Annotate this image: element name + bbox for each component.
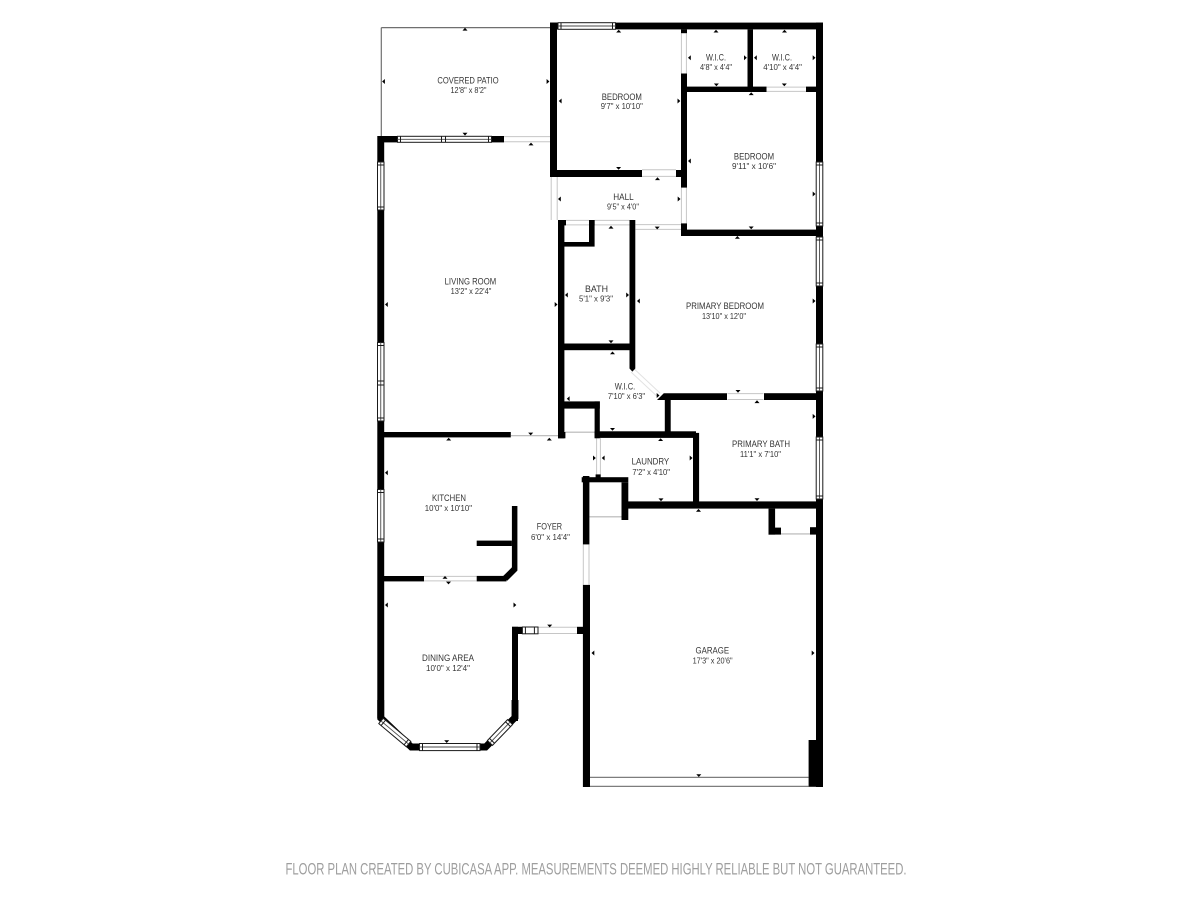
svg-text:FOYER: FOYER [537,522,563,532]
svg-text:7'10" x 6'3": 7'10" x 6'3" [608,391,645,401]
svg-text:9'7" x 10'10": 9'7" x 10'10" [601,101,643,111]
svg-text:11'1" x 7'10": 11'1" x 7'10" [740,449,781,459]
svg-text:BATH: BATH [585,284,608,294]
svg-text:5'1" x 9'3": 5'1" x 9'3" [579,294,613,304]
svg-text:9'5" x 4'0": 9'5" x 4'0" [607,201,639,211]
svg-text:13'2" x 22'4": 13'2" x 22'4" [451,286,492,296]
svg-text:FLOOR PLAN CREATED BY CUBICASA: FLOOR PLAN CREATED BY CUBICASA APP. MEAS… [286,861,907,879]
svg-text:BEDROOM: BEDROOM [734,152,774,162]
svg-text:PRIMARY BEDROOM: PRIMARY BEDROOM [686,301,764,311]
svg-text:6'0" x 14'4": 6'0" x 14'4" [531,532,570,542]
svg-text:PRIMARY BATH: PRIMARY BATH [732,439,790,449]
svg-text:DINING AREA: DINING AREA [422,653,475,663]
svg-text:10'0" x 12'4": 10'0" x 12'4" [426,663,470,673]
svg-text:7'2" x 4'10": 7'2" x 4'10" [632,467,670,477]
svg-text:W.I.C.: W.I.C. [615,382,635,392]
svg-text:LIVING ROOM: LIVING ROOM [445,277,497,287]
svg-text:LAUNDRY: LAUNDRY [632,456,670,466]
svg-text:4'8" x 4'4": 4'8" x 4'4" [700,62,732,72]
svg-text:KITCHEN: KITCHEN [432,493,466,503]
svg-text:12'8" x 8'2": 12'8" x 8'2" [451,85,487,95]
svg-text:9'11" x 10'6": 9'11" x 10'6" [732,161,776,171]
svg-text:GARAGE: GARAGE [696,646,730,656]
svg-text:COVERED PATIO: COVERED PATIO [437,76,498,86]
svg-text:4'10" x 4'4": 4'10" x 4'4" [763,62,802,72]
svg-text:10'0" x 10'10": 10'0" x 10'10" [425,503,472,513]
svg-text:13'10" x 12'0": 13'10" x 12'0" [702,311,746,321]
svg-text:17'3" x 20'6": 17'3" x 20'6" [693,655,733,665]
